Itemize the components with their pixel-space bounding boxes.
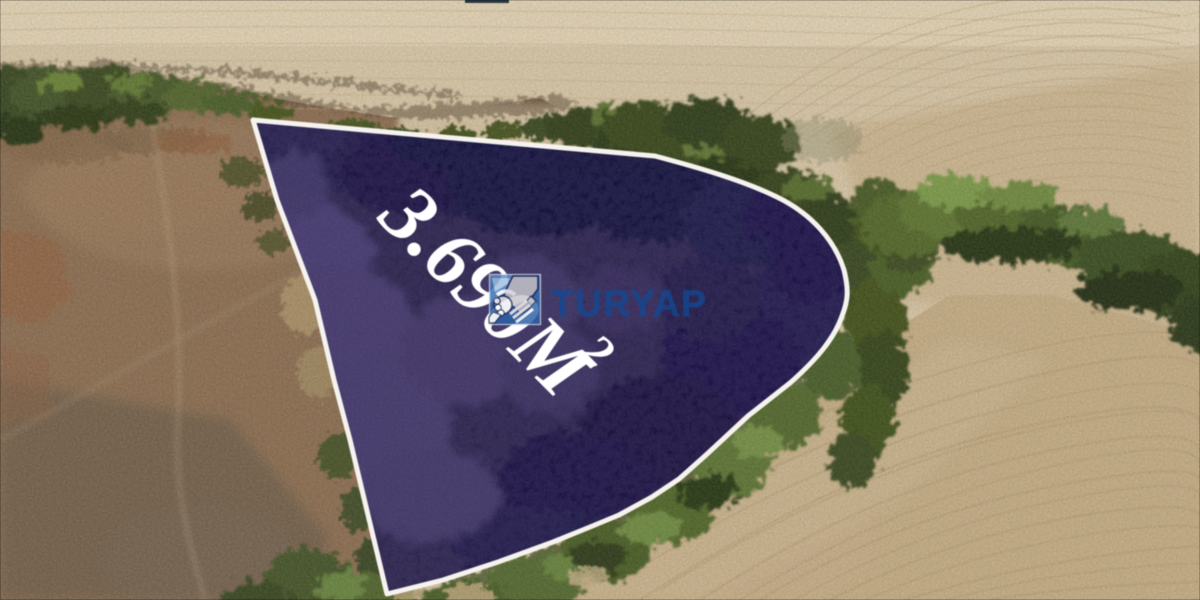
svg-text:TURYAP: TURYAP xyxy=(551,283,707,324)
